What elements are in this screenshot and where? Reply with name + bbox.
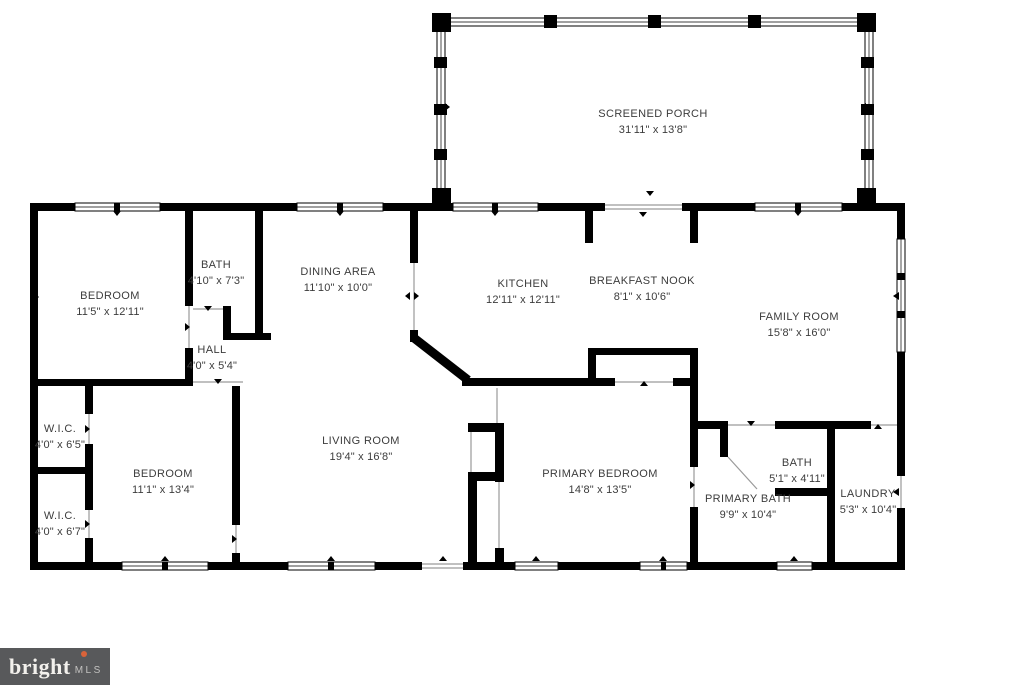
room-name: BATH	[188, 259, 245, 271]
floor-plan: SCREENED PORCH 31'11" x 13'8" BEDROOM 11…	[0, 0, 1024, 685]
room-dimensions: 4'0" x 6'5"	[35, 439, 85, 451]
room-label-living-room: LIVING ROOM 19'4" x 16'8"	[322, 435, 400, 463]
room-dimensions: 4'0" x 5'4"	[187, 360, 237, 372]
room-dimensions: 31'11" x 13'8"	[598, 124, 708, 136]
room-dimensions: 11'5" x 12'11"	[76, 306, 144, 318]
room-label-laundry: LAUNDRY 5'3" x 10'4"	[840, 488, 897, 516]
room-dimensions: 19'4" x 16'8"	[322, 451, 400, 463]
room-label-hall: HALL 4'0" x 5'4"	[187, 344, 237, 372]
bright-mls-logo-dot-icon	[81, 651, 87, 657]
room-label-primary-bedroom: PRIMARY BEDROOM 14'8" x 13'5"	[542, 468, 658, 496]
room-label-primary-bath: PRIMARY BATH 9'9" x 10'4"	[705, 493, 791, 521]
room-dimensions: 14'8" x 13'5"	[542, 484, 658, 496]
bright-mls-watermark: bright MLS	[0, 648, 110, 685]
room-label-dining-area: DINING AREA 11'10" x 10'0"	[300, 266, 375, 294]
room-label-bedroom-2: BEDROOM 11'1" x 13'4"	[132, 468, 194, 496]
room-label-wic-2: W.I.C. 4'0" x 6'7"	[35, 510, 85, 538]
room-name: KITCHEN	[486, 278, 560, 290]
room-label-wic-1: W.I.C. 4'0" x 6'5"	[35, 423, 85, 451]
room-dimensions: 15'8" x 16'0"	[759, 327, 839, 339]
bright-mls-logo-text: bright	[9, 656, 71, 678]
room-dimensions: 5'3" x 10'4"	[840, 504, 897, 516]
room-dimensions: 11'10" x 10'0"	[300, 282, 375, 294]
room-name: W.I.C.	[35, 423, 85, 435]
room-dimensions: 12'11" x 12'11"	[486, 294, 560, 306]
room-label-bath-1: BATH 4'10" x 7'3"	[188, 259, 245, 287]
room-label-family-room: FAMILY ROOM 15'8" x 16'0"	[759, 311, 839, 339]
room-dimensions: 4'0" x 6'7"	[35, 526, 85, 538]
room-name: BEDROOM	[132, 468, 194, 480]
room-label-bedroom-1: BEDROOM 11'5" x 12'11"	[76, 290, 144, 318]
room-name: SCREENED PORCH	[598, 108, 708, 120]
room-name: HALL	[187, 344, 237, 356]
room-name: PRIMARY BEDROOM	[542, 468, 658, 480]
room-dimensions: 4'10" x 7'3"	[188, 275, 245, 287]
room-name: DINING AREA	[300, 266, 375, 278]
room-name: LIVING ROOM	[322, 435, 400, 447]
room-label-bath-2: BATH 5'1" x 4'11"	[769, 457, 825, 485]
room-label-breakfast-nook: BREAKFAST NOOK 8'1" x 10'6"	[589, 275, 695, 303]
room-dimensions: 8'1" x 10'6"	[589, 291, 695, 303]
room-name: BATH	[769, 457, 825, 469]
room-name: W.I.C.	[35, 510, 85, 522]
room-dimensions: 5'1" x 4'11"	[769, 473, 825, 485]
floor-plan-drawing	[0, 0, 1024, 685]
room-dimensions: 9'9" x 10'4"	[705, 509, 791, 521]
room-label-kitchen: KITCHEN 12'11" x 12'11"	[486, 278, 560, 306]
room-dimensions: 11'1" x 13'4"	[132, 484, 194, 496]
room-name: BREAKFAST NOOK	[589, 275, 695, 287]
room-name: LAUNDRY	[840, 488, 897, 500]
room-name: PRIMARY BATH	[705, 493, 791, 505]
room-label-screened-porch: SCREENED PORCH 31'11" x 13'8"	[598, 108, 708, 136]
room-name: BEDROOM	[76, 290, 144, 302]
room-name: FAMILY ROOM	[759, 311, 839, 323]
bright-mls-logo-suffix: MLS	[75, 665, 103, 676]
